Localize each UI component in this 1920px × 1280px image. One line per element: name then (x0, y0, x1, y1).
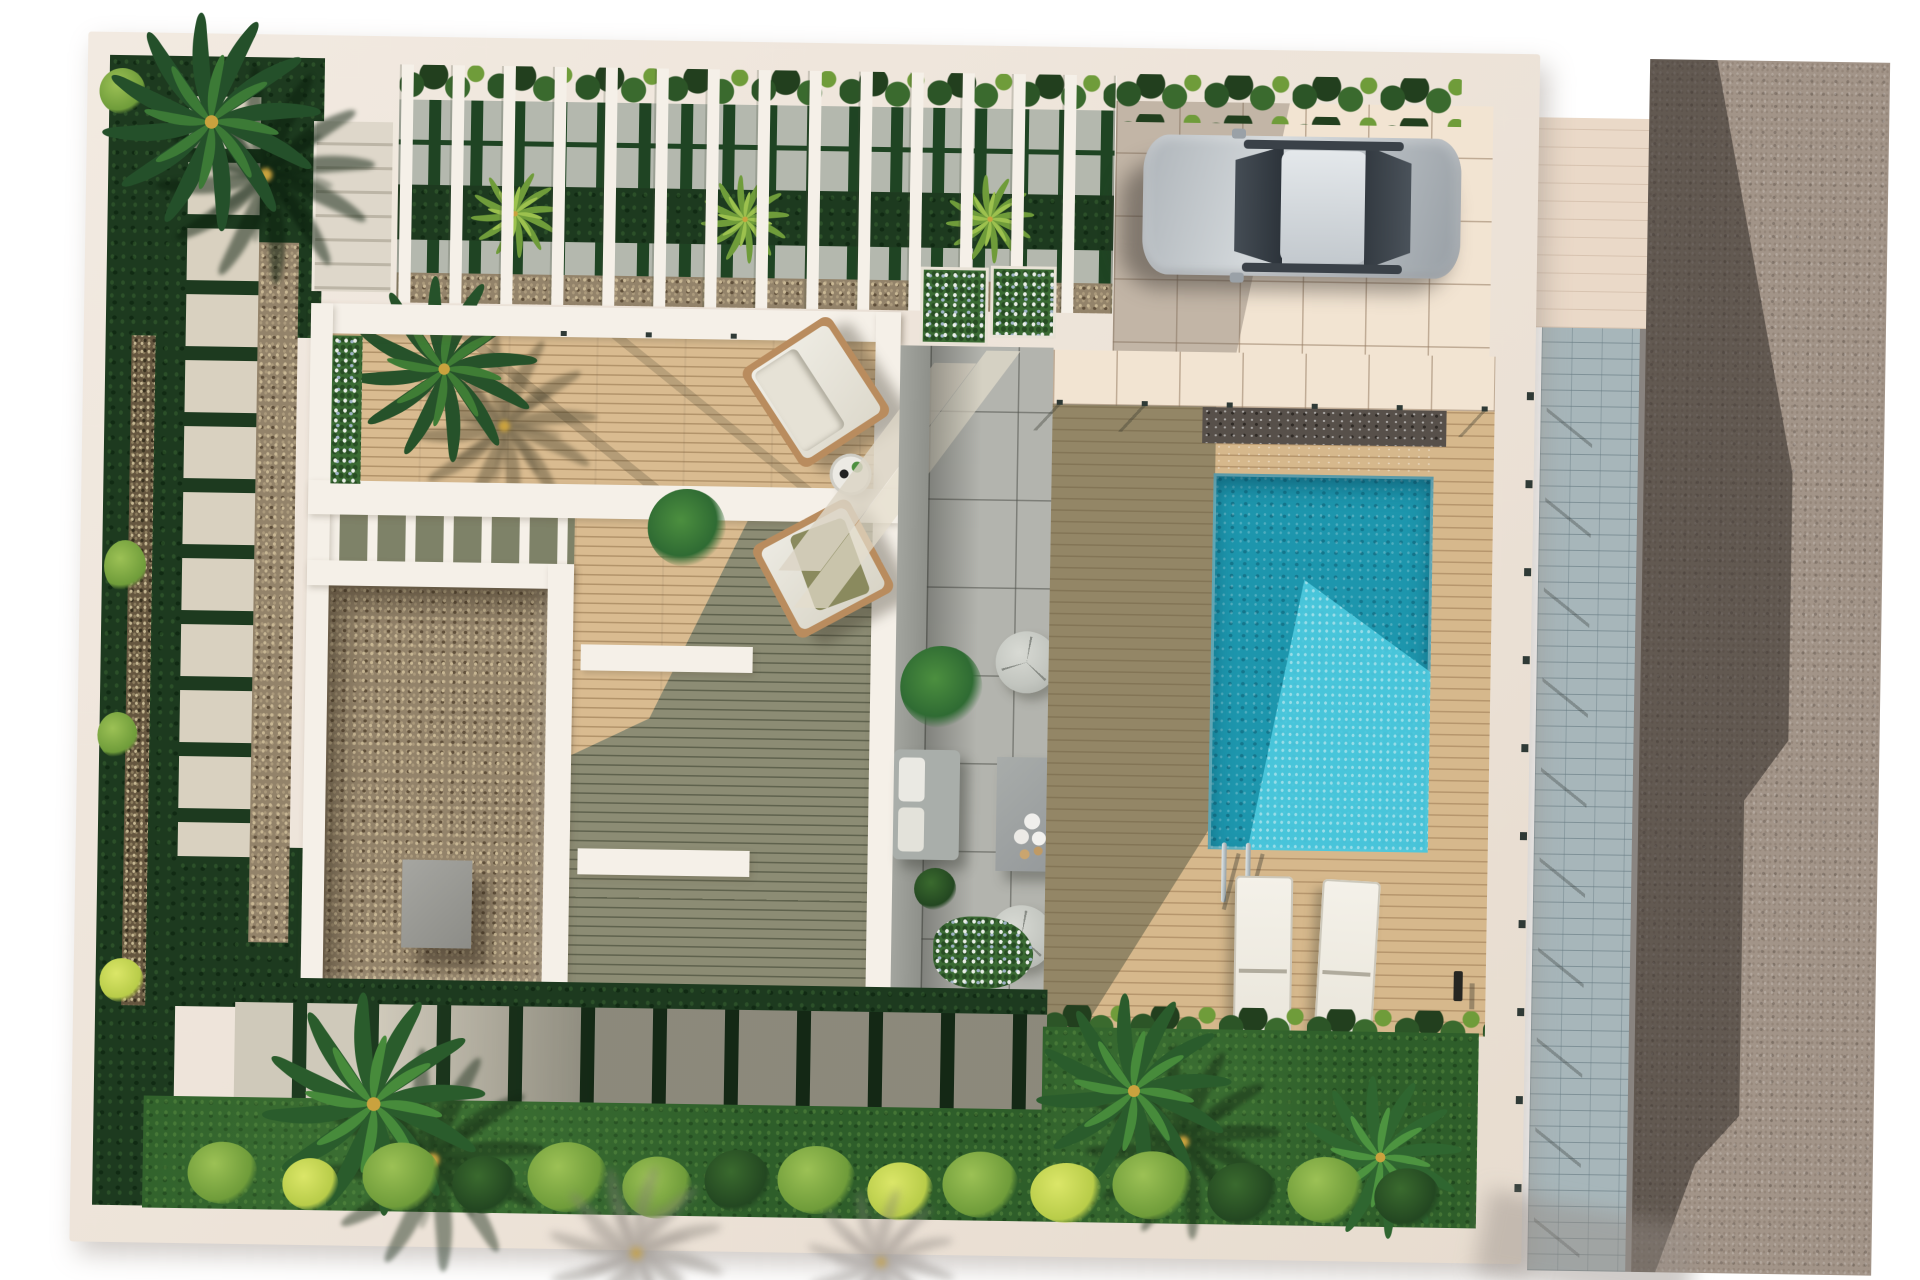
deck-palm-icon (343, 268, 546, 471)
plate-icon (1014, 829, 1029, 844)
pool-water (1208, 473, 1434, 852)
sofa-cushion (898, 807, 925, 851)
plate-icon (1032, 831, 1046, 845)
roof-frame-top-band (307, 560, 574, 589)
corner-palm-icon (92, 3, 331, 242)
patio-walkway (890, 267, 1055, 1029)
pool-coping-stone (1202, 407, 1447, 447)
pool-spillway (1214, 443, 1434, 476)
bowl-icon (1020, 849, 1030, 859)
parapet-planter-strip (330, 335, 362, 483)
car-roof (1280, 150, 1368, 263)
car (1142, 134, 1462, 279)
car-rear-window (1364, 146, 1412, 271)
pool-water-sunlit (1208, 473, 1434, 852)
planter-box (923, 270, 986, 343)
pool-deck (1043, 350, 1496, 1037)
parking-hedge (1116, 74, 1462, 127)
car-windshield (1234, 146, 1284, 267)
render-tilt-group (0, 0, 1920, 1280)
bollard-light (1453, 971, 1462, 1001)
planter-box (993, 269, 1054, 336)
site-plan-render (0, 0, 1920, 1280)
bowl-icon (1034, 846, 1043, 855)
louver-beam (577, 848, 749, 877)
plate-icon (1024, 813, 1040, 829)
house-roof-deck-block (300, 303, 901, 1027)
car-mirror-icon (1230, 272, 1244, 282)
roof-hatch (401, 860, 472, 949)
sofa-cushion (898, 757, 925, 801)
louver-slat-row (329, 514, 575, 564)
louver-beam (580, 644, 752, 673)
outdoor-sofa (893, 749, 961, 860)
car-mirror-icon (1232, 128, 1246, 138)
